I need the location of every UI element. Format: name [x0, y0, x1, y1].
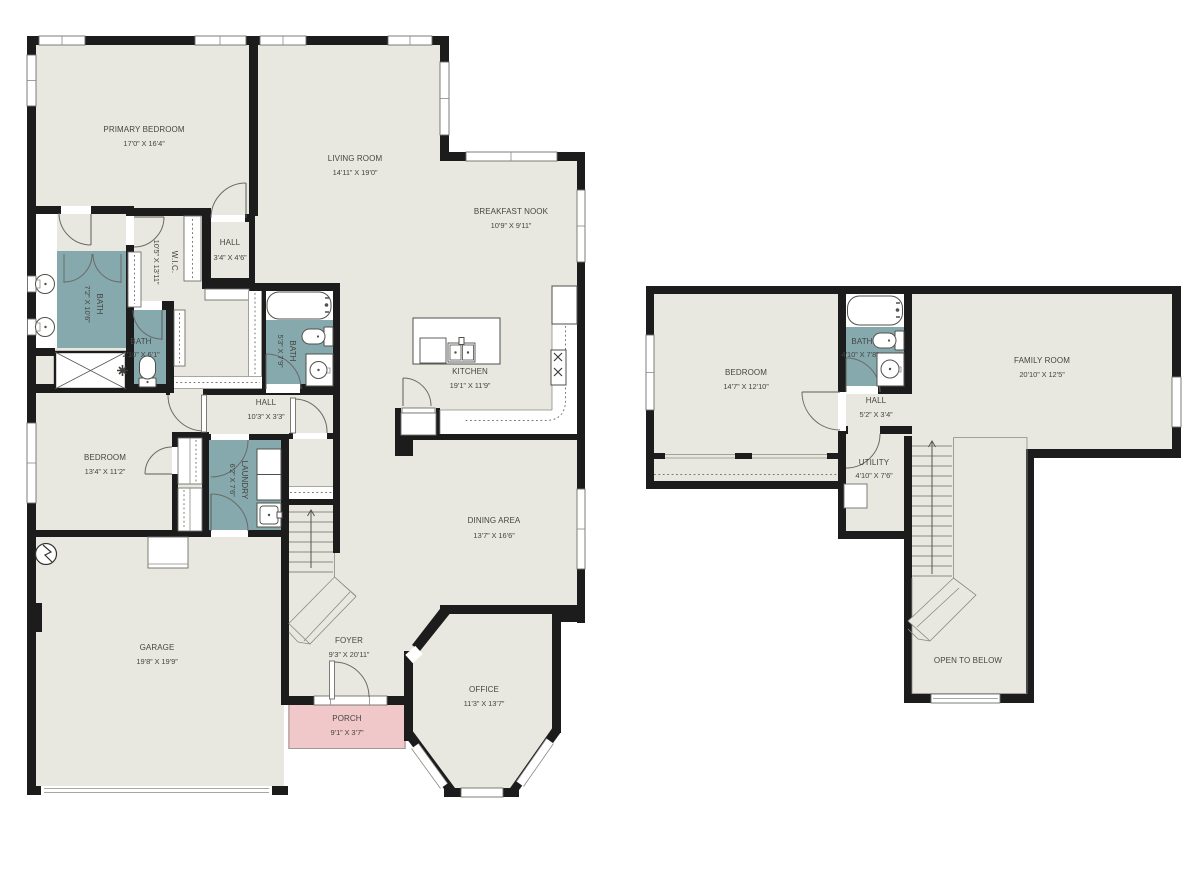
svg-text:11’3” X 13’7”: 11’3” X 13’7” — [464, 699, 505, 708]
svg-text:HALL: HALL — [256, 398, 277, 407]
svg-text:10’9” X 9’11”: 10’9” X 9’11” — [491, 221, 532, 230]
svg-text:14’11” X 19’0”: 14’11” X 19’0” — [333, 168, 378, 177]
svg-text:19’8” X 19’9”: 19’8” X 19’9” — [136, 657, 178, 666]
svg-text:PORCH: PORCH — [332, 714, 362, 723]
svg-text:W.I.C.: W.I.C. — [170, 251, 179, 273]
svg-text:HALL: HALL — [220, 238, 241, 247]
svg-text:FOYER: FOYER — [335, 636, 363, 645]
svg-text:BATH: BATH — [95, 293, 104, 314]
svg-text:3’4” X 4’6”: 3’4” X 4’6” — [213, 253, 247, 262]
svg-text:KITCHEN: KITCHEN — [452, 367, 488, 376]
svg-text:BEDROOM: BEDROOM — [725, 368, 767, 377]
svg-text:7’2” X 10’6”: 7’2” X 10’6” — [83, 285, 92, 323]
svg-text:BATH: BATH — [851, 337, 872, 346]
svg-text:13’4” X 11’2”: 13’4” X 11’2” — [85, 467, 126, 476]
svg-text:UTILITY: UTILITY — [859, 458, 890, 467]
svg-text:10’5” X 13’11”: 10’5” X 13’11” — [152, 240, 161, 285]
svg-text:GARAGE: GARAGE — [140, 643, 175, 652]
svg-text:OPEN TO BELOW: OPEN TO BELOW — [934, 656, 1002, 665]
svg-text:2’10” X 6’1”: 2’10” X 6’1” — [122, 350, 160, 359]
svg-text:OFFICE: OFFICE — [469, 685, 499, 694]
svg-text:4’10” X 7’8”: 4’10” X 7’8” — [841, 350, 879, 359]
svg-text:PRIMARY BEDROOM: PRIMARY BEDROOM — [103, 125, 184, 134]
svg-text:DINING AREA: DINING AREA — [468, 516, 521, 525]
svg-text:13’7” X 16’6”: 13’7” X 16’6” — [473, 531, 515, 540]
svg-text:6’2” X 7’6”: 6’2” X 7’6” — [228, 463, 237, 497]
svg-text:9’1” X 3’7”: 9’1” X 3’7” — [330, 728, 364, 737]
svg-text:BREAKFAST NOOK: BREAKFAST NOOK — [474, 207, 549, 216]
svg-text:20’10” X 12’5”: 20’10” X 12’5” — [1019, 370, 1065, 379]
svg-text:BATH: BATH — [130, 337, 151, 346]
svg-text:BEDROOM: BEDROOM — [84, 453, 126, 462]
svg-text:FAMILY ROOM: FAMILY ROOM — [1014, 356, 1070, 365]
svg-text:17’0” X 16’4”: 17’0” X 16’4” — [123, 139, 165, 148]
svg-text:14’7” X 12’10”: 14’7” X 12’10” — [723, 382, 769, 391]
svg-text:LIVING ROOM: LIVING ROOM — [328, 154, 383, 163]
svg-text:10’3” X 3’3”: 10’3” X 3’3” — [247, 412, 285, 421]
svg-text:BATH: BATH — [288, 340, 297, 361]
svg-text:5’2” X 3’4”: 5’2” X 3’4” — [859, 410, 893, 419]
svg-text:LAUNDRY: LAUNDRY — [240, 461, 249, 500]
svg-text:9’3” X 20’11”: 9’3” X 20’11” — [329, 650, 370, 659]
svg-text:HALL: HALL — [866, 396, 887, 405]
svg-text:4’10” X 7’6”: 4’10” X 7’6” — [855, 471, 893, 480]
svg-text:5’3” X 7’9”: 5’3” X 7’9” — [276, 334, 285, 368]
svg-text:19’1” X 11’9”: 19’1” X 11’9” — [450, 381, 491, 390]
